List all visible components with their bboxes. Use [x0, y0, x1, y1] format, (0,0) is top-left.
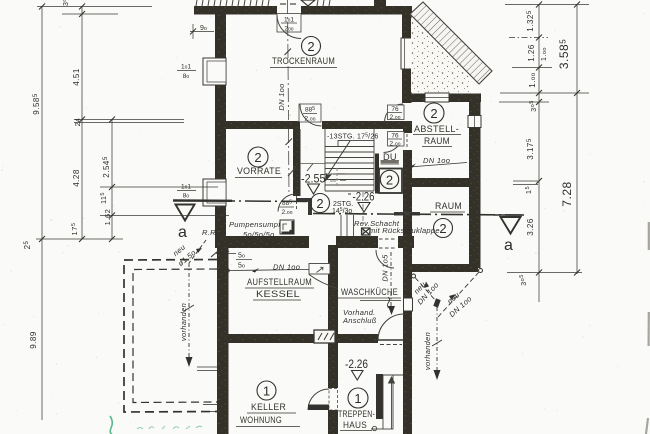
- svg-text:WASCHKÜCHE: WASCHKÜCHE: [341, 287, 398, 297]
- svg-text:DN 1oo: DN 1oo: [423, 156, 450, 165]
- svg-text:R.R: R.R: [202, 228, 216, 237]
- svg-text:VORRATE: VORRATE: [237, 166, 281, 176]
- svg-text:1: 1: [354, 391, 361, 406]
- svg-text:mit Rückstauklappe: mit Rückstauklappe: [369, 226, 440, 235]
- svg-text:76: 76: [391, 106, 399, 113]
- svg-text:2: 2: [316, 196, 323, 211]
- svg-text:2oo: 2oo: [284, 26, 293, 33]
- svg-text:KELLER: KELLER: [251, 402, 286, 412]
- svg-text:3.26: 3.26: [526, 218, 535, 236]
- svg-text:8o: 8o: [183, 193, 190, 200]
- svg-text:-13STG. 175/26: -13STG. 175/26: [327, 133, 379, 141]
- svg-text:a: a: [504, 237, 513, 254]
- svg-text:2.oo: 2.oo: [305, 116, 316, 123]
- svg-text:9.89: 9.89: [29, 331, 38, 349]
- svg-text:Anschluß: Anschluß: [342, 316, 377, 325]
- svg-text:-2.26: -2.26: [345, 359, 368, 371]
- svg-text:1.oo: 1.oo: [541, 47, 548, 61]
- svg-text:2: 2: [430, 106, 437, 121]
- svg-text:2: 2: [439, 221, 446, 236]
- svg-text:DN 1o5: DN 1o5: [381, 254, 390, 282]
- svg-text:RAUM: RAUM: [424, 136, 450, 146]
- svg-text:ABSTELL-: ABSTELL-: [414, 124, 459, 134]
- svg-text:1.62: 1.62: [103, 209, 112, 226]
- svg-text:vorhanden: vorhanden: [179, 303, 188, 341]
- svg-text:KESSEL: KESSEL: [256, 289, 300, 299]
- svg-text:2.oo: 2.oo: [390, 114, 401, 121]
- svg-text:TREPPEN-: TREPPEN-: [338, 409, 375, 419]
- svg-text:2.oo: 2.oo: [282, 209, 293, 216]
- svg-text:5o/5o/5o: 5o/5o/5o: [243, 230, 275, 239]
- svg-text:2.oo: 2.oo: [390, 141, 401, 148]
- svg-text:76: 76: [391, 133, 399, 140]
- svg-text:8o: 8o: [183, 73, 190, 80]
- svg-text:DN 1oo: DN 1oo: [277, 83, 286, 110]
- svg-text:RAUM: RAUM: [435, 201, 462, 211]
- svg-text:9o: 9o: [200, 25, 207, 32]
- svg-text:1o1: 1o1: [181, 64, 191, 71]
- svg-text:AUFSTELLRAUM: AUFSTELLRAUM: [247, 277, 312, 287]
- svg-text:2STG.: 2STG.: [333, 201, 353, 208]
- svg-text:Pumpensumpf: Pumpensumpf: [229, 220, 281, 229]
- svg-text:7.28: 7.28: [560, 181, 574, 206]
- svg-text:2: 2: [307, 39, 314, 54]
- svg-text:2: 2: [386, 173, 393, 188]
- svg-text:4.51: 4.51: [72, 68, 81, 86]
- svg-text:4.28: 4.28: [72, 169, 81, 187]
- svg-text:1.26: 1.26: [527, 44, 536, 62]
- svg-text:5o: 5o: [238, 263, 245, 270]
- svg-text:vorhanden: vorhanden: [423, 332, 432, 370]
- svg-text:1: 1: [263, 384, 270, 399]
- svg-text:a: a: [178, 224, 187, 241]
- svg-text:5o: 5o: [238, 253, 245, 260]
- svg-text:TROCKENRAUM: TROCKENRAUM: [272, 56, 335, 66]
- svg-text:HAUS: HAUS: [343, 420, 367, 430]
- svg-text:DU: DU: [383, 152, 397, 162]
- svg-text:WOHNUNG: WOHNUNG: [240, 415, 282, 425]
- svg-text:1o1: 1o1: [284, 17, 294, 24]
- svg-text:24: 24: [75, 118, 82, 127]
- svg-text:-2.26: -2.26: [353, 192, 375, 204]
- svg-text:2: 2: [254, 150, 261, 165]
